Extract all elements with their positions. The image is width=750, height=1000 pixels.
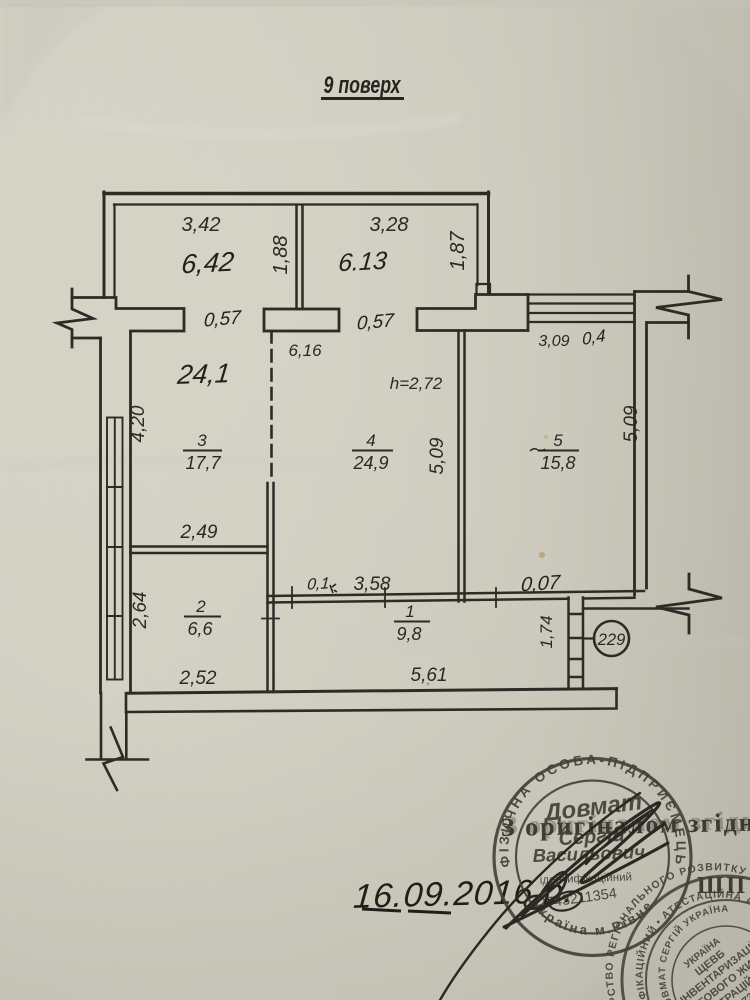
svg-text:2,49: 2,49 <box>180 522 218 543</box>
svg-text:0,07: 0,07 <box>520 572 561 597</box>
svg-text:6.13: 6.13 <box>337 247 388 278</box>
svg-text:3: 3 <box>197 431 207 450</box>
svg-text:9,8: 9,8 <box>396 624 421 644</box>
svg-text:0,1: 0,1 <box>307 574 330 594</box>
svg-text:6,42: 6,42 <box>180 246 235 280</box>
svg-text:6,16: 6,16 <box>288 341 322 360</box>
svg-text:2,52: 2,52 <box>179 668 217 689</box>
svg-text:17,7: 17,7 <box>185 453 221 473</box>
svg-text:6,6: 6,6 <box>187 619 213 639</box>
svg-text:2: 2 <box>195 597 206 616</box>
svg-text:2,64: 2,64 <box>130 592 151 630</box>
svg-text:3,58: 3,58 <box>354 574 391 595</box>
svg-text:24,1: 24,1 <box>175 357 232 390</box>
svg-text:4,20: 4,20 <box>128 405 149 442</box>
svg-text:1,88: 1,88 <box>270 236 292 275</box>
svg-text:h=2,72: h=2,72 <box>390 374 443 393</box>
svg-text:1: 1 <box>405 602 414 621</box>
svg-text:3,28: 3,28 <box>370 214 409 236</box>
svg-text:1,74: 1,74 <box>537 615 556 648</box>
svg-text:229: 229 <box>597 631 626 649</box>
svg-text:5: 5 <box>553 431 563 450</box>
svg-text:0,4: 0,4 <box>582 326 606 349</box>
svg-text:9 поверх: 9 поверх <box>324 73 402 99</box>
svg-text:5,09: 5,09 <box>427 437 448 474</box>
svg-text:3,42: 3,42 <box>182 214 221 236</box>
svg-text:5,61: 5,61 <box>411 665 448 686</box>
svg-text:0,57: 0,57 <box>356 310 395 334</box>
svg-text:4: 4 <box>366 431 375 450</box>
svg-text:5,09: 5,09 <box>621 405 642 442</box>
svg-text:24,9: 24,9 <box>352 453 388 473</box>
svg-text:3,09: 3,09 <box>538 333 569 350</box>
svg-text:15,8: 15,8 <box>540 453 575 473</box>
svg-text:1,87: 1,87 <box>447 231 469 271</box>
svg-text:0,57: 0,57 <box>203 307 242 331</box>
